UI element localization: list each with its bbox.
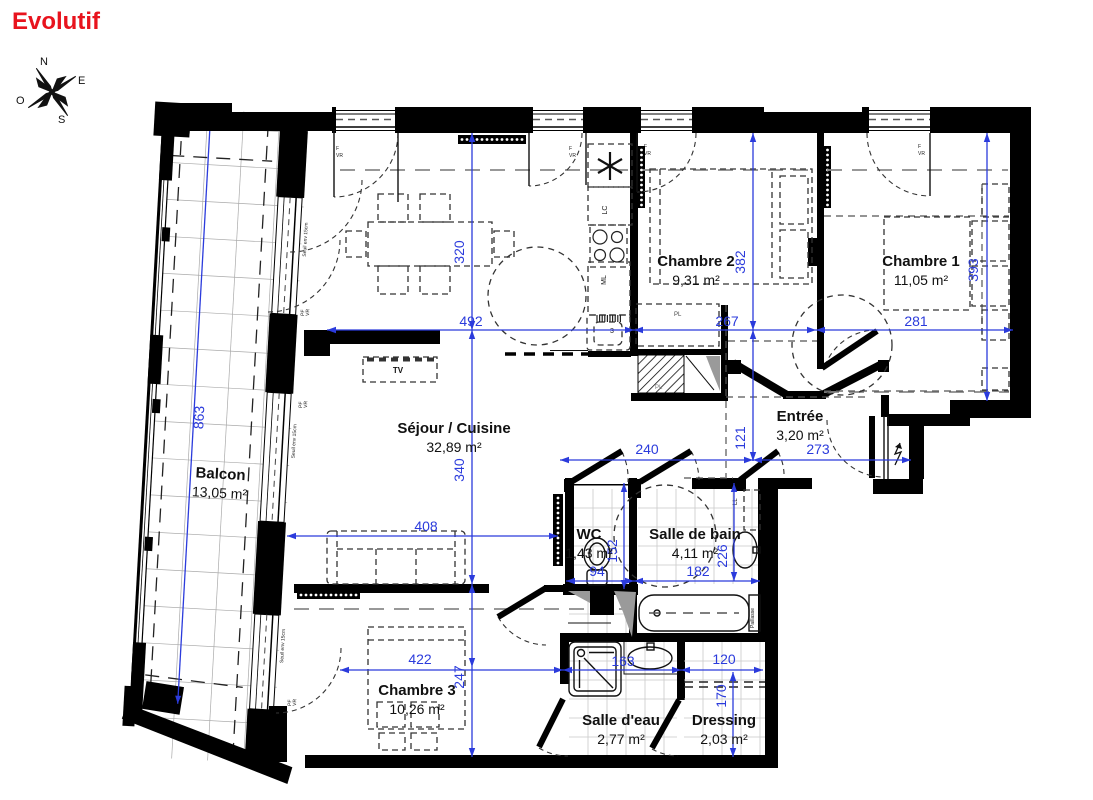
svg-text:863: 863: [190, 405, 207, 429]
svg-text:2,03 m²: 2,03 m²: [700, 731, 748, 747]
svg-text:492: 492: [459, 313, 483, 329]
svg-text:WC: WC: [577, 526, 602, 543]
svg-text:PL: PL: [655, 385, 663, 391]
svg-text:11,05 m²: 11,05 m²: [894, 272, 949, 288]
svg-text:VR: VR: [305, 308, 311, 316]
svg-text:13,05 m²: 13,05 m²: [192, 483, 248, 502]
svg-text:VR: VR: [336, 153, 343, 159]
svg-text:4,11 m²: 4,11 m²: [672, 545, 719, 561]
svg-text:S: S: [58, 114, 65, 126]
svg-text:VR: VR: [918, 151, 925, 157]
svg-text:ML: ML: [601, 275, 608, 285]
svg-text:32,89 m²: 32,89 m²: [426, 439, 482, 455]
svg-text:VR: VR: [303, 400, 309, 408]
svg-text:281: 281: [904, 313, 928, 329]
svg-text:VR: VR: [292, 698, 298, 706]
svg-text:2,77 m²: 2,77 m²: [597, 731, 645, 747]
svg-text:Chambre 3: Chambre 3: [378, 682, 456, 699]
svg-text:182: 182: [686, 563, 710, 579]
svg-text:267: 267: [715, 313, 739, 329]
svg-text:163: 163: [611, 653, 635, 669]
svg-text:121: 121: [732, 426, 748, 450]
svg-text:Chambre 1: Chambre 1: [882, 253, 960, 270]
svg-text:393: 393: [965, 258, 981, 282]
svg-text:408: 408: [414, 518, 438, 534]
svg-text:Entrée: Entrée: [777, 408, 824, 425]
svg-text:120: 120: [712, 651, 736, 667]
svg-text:Balcon: Balcon: [195, 464, 246, 484]
svg-text:F: F: [918, 144, 921, 150]
svg-text:240: 240: [635, 441, 659, 457]
svg-text:Chambre 2: Chambre 2: [657, 253, 735, 270]
svg-text:3: 3: [610, 328, 614, 335]
svg-text:320: 320: [451, 240, 467, 264]
svg-text:94: 94: [589, 563, 605, 579]
svg-text:VR: VR: [644, 151, 651, 157]
svg-text:170: 170: [713, 684, 729, 708]
svg-text:10,26 m²: 10,26 m²: [389, 701, 445, 717]
svg-text:Séjour / Cuisine: Séjour / Cuisine: [397, 420, 510, 437]
svg-text:1,43 m²: 1,43 m²: [565, 545, 613, 561]
svg-text:3,20 m²: 3,20 m²: [776, 427, 824, 443]
svg-text:F: F: [569, 146, 572, 152]
svg-text:Salle de bain: Salle de bain: [649, 526, 741, 543]
svg-text:N: N: [40, 56, 48, 68]
svg-text:Dressing: Dressing: [692, 712, 756, 729]
svg-text:E: E: [78, 75, 85, 87]
svg-text:340: 340: [451, 458, 467, 482]
svg-text:F: F: [336, 146, 339, 152]
svg-text:422: 422: [408, 651, 432, 667]
svg-text:Evolutif: Evolutif: [12, 8, 101, 35]
svg-text:Paillasse: Paillasse: [750, 608, 756, 628]
svg-text:O: O: [16, 95, 25, 107]
svg-text:9,31 m²: 9,31 m²: [672, 272, 720, 288]
svg-text:TV: TV: [393, 366, 404, 375]
svg-text:273: 273: [806, 441, 830, 457]
svg-text:VR: VR: [569, 153, 576, 159]
svg-text:LC: LC: [602, 206, 609, 215]
svg-text:PL: PL: [674, 312, 682, 318]
svg-text:Salle d'eau: Salle d'eau: [582, 712, 660, 729]
